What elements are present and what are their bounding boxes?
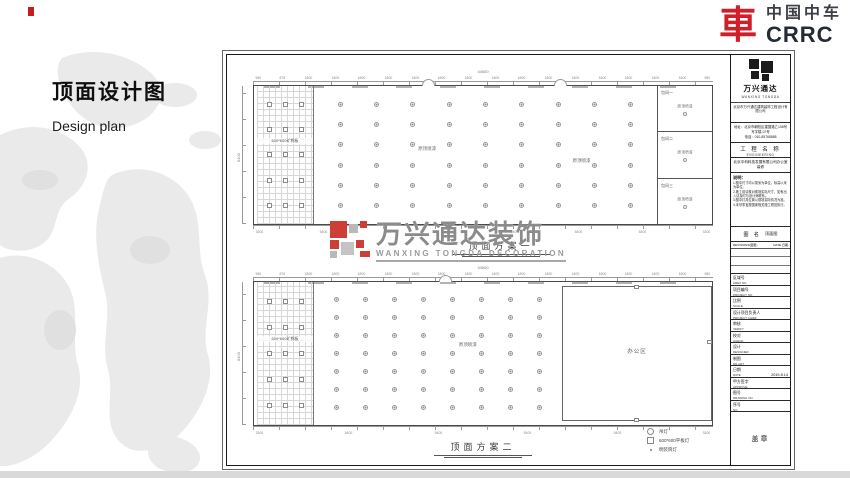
pendant-light-icon bbox=[392, 315, 397, 320]
dim-number: 3300 bbox=[703, 229, 711, 234]
panel-light-icon bbox=[267, 403, 272, 408]
pendant-light-icon bbox=[508, 333, 513, 338]
plan-two-bottom-dims: 330054005400540054003300 bbox=[253, 430, 713, 436]
pendant-light-icon bbox=[447, 203, 452, 208]
column-mark bbox=[707, 340, 712, 344]
brand-name-cn: 中国中车 bbox=[766, 6, 842, 23]
field-label-en: APPROVE bbox=[733, 385, 748, 389]
dim-number: 3300 bbox=[256, 430, 264, 435]
panel-light-icon bbox=[267, 325, 272, 330]
dim-number: 5400 bbox=[320, 229, 328, 234]
dim-number: 5400 bbox=[524, 430, 532, 435]
legend-item: 600*600平板灯 bbox=[647, 436, 727, 445]
pendant-light-icon bbox=[556, 203, 561, 208]
column-mark bbox=[634, 285, 639, 289]
pendant-light-icon bbox=[392, 405, 397, 410]
crrc-emblem-icon: 車 bbox=[717, 5, 759, 47]
dim-number: 1800 bbox=[305, 75, 313, 80]
revision-row bbox=[731, 249, 790, 257]
ceiling-finish-label: 原顶喷漆 bbox=[418, 146, 436, 152]
panel-light-icon bbox=[283, 299, 288, 304]
office-area-room: 办公区 bbox=[562, 286, 712, 421]
ceiling-finish-label: 原顶喷漆 bbox=[459, 342, 477, 348]
wanxing-tongda-logo-icon bbox=[749, 59, 773, 81]
pendant-light-icon bbox=[421, 405, 426, 410]
pendant-light-icon bbox=[363, 351, 368, 356]
panel-light-icon bbox=[283, 178, 288, 183]
dim-number: 1800 bbox=[385, 75, 393, 80]
note-line: 4.未尽事宜按国家相关施工规范执行。 bbox=[733, 203, 788, 207]
pendant-light-icon bbox=[410, 102, 415, 107]
crrc-logo: 車 中国中车 CRRC bbox=[717, 5, 842, 47]
watermark-name-en: WANXING TONGDA DECORATION bbox=[376, 249, 566, 262]
titleblock-logo-cn: 万兴通达 bbox=[744, 83, 778, 94]
pendant-light-icon bbox=[483, 142, 488, 147]
page-subtitle: Design plan bbox=[52, 118, 167, 134]
pendant-light-grid bbox=[322, 94, 649, 216]
panel-light-icon bbox=[283, 377, 288, 382]
pendant-light-icon bbox=[334, 333, 339, 338]
legend-item: 吊灯 bbox=[647, 427, 727, 436]
pendant-light-icon bbox=[374, 142, 379, 147]
pendant-light-icon bbox=[334, 297, 339, 302]
plan-one-panel-ceiling: 600*600矿棉板 bbox=[257, 86, 314, 224]
pendant-light-icon bbox=[508, 297, 513, 302]
titleblock-field-row: 设计项目负责人PROJECT CHIEF bbox=[731, 309, 790, 321]
door-arc-icon bbox=[439, 275, 452, 282]
pendant-light-icon bbox=[479, 369, 484, 374]
titleblock: 万兴通达 WANXING TONGDA 北京市万兴通达建筑装饰工程设计有限公司 … bbox=[730, 55, 790, 465]
room-ceiling-label: 原顶喷漆 bbox=[677, 151, 692, 156]
note-line: 2.施工前请核对现场实际尺寸，如有出入请及时与设计师联系。 bbox=[733, 190, 788, 199]
corner-red-mark bbox=[28, 7, 34, 16]
pendant-light-icon bbox=[392, 351, 397, 356]
dim-number: 1800 bbox=[625, 271, 633, 276]
dim-number: 1800 bbox=[385, 271, 393, 276]
dim-number: 875 bbox=[280, 271, 286, 276]
room-name: 包间三 bbox=[661, 183, 673, 189]
pendant-light-icon bbox=[363, 405, 368, 410]
titleblock-field-row: 日期DATE2019.8.14 bbox=[731, 366, 790, 378]
titleblock-revisions: REVISIONS(图更) DATE 日期 bbox=[731, 242, 790, 274]
dim-number: 980 bbox=[256, 271, 262, 276]
dim-number: 1800 bbox=[518, 271, 526, 276]
pendant-light-icon bbox=[508, 369, 513, 374]
pendant-light-icon bbox=[421, 369, 426, 374]
door-arc-icon bbox=[554, 79, 567, 86]
field-label-en: DESIGNER bbox=[733, 350, 749, 354]
pendant-light-icon bbox=[683, 205, 687, 209]
dim-number: 1800 bbox=[598, 75, 606, 80]
dim-number: 1800 bbox=[331, 271, 339, 276]
dim-number: 1800 bbox=[545, 75, 553, 80]
dim-number: 5400 bbox=[434, 430, 442, 435]
dim-number: 980 bbox=[705, 75, 711, 80]
pendant-light-icon bbox=[556, 142, 561, 147]
dim-number: 1800 bbox=[465, 271, 473, 276]
pendant-light-icon bbox=[519, 142, 524, 147]
pendant-light-icon bbox=[338, 183, 343, 188]
pendant-light-icon bbox=[479, 315, 484, 320]
panel-light-icon bbox=[283, 102, 288, 107]
pendant-light-icon bbox=[508, 351, 513, 356]
dot-symbol-icon bbox=[647, 448, 654, 451]
plan-one-side-dim-line bbox=[242, 86, 246, 224]
pendant-light-icon bbox=[450, 351, 455, 356]
revisions-label: REVISIONS(图更) bbox=[733, 243, 757, 247]
titleblock-logo: 万兴通达 WANXING TONGDA 北京市万兴通达建筑装饰工程设计有限公司 bbox=[731, 55, 790, 123]
wanxing-watermark-logo-icon bbox=[330, 221, 370, 261]
pendant-light-icon bbox=[483, 122, 488, 127]
pendant-light-icon bbox=[338, 122, 343, 127]
titleblock-field-row: 项目编号PROJECT NO bbox=[731, 286, 790, 298]
plan-two-outline: 8400 600*600矿棉板 原顶喷漆 办公区 bbox=[253, 281, 713, 426]
plan-one-side-dim: 8400 bbox=[236, 153, 241, 162]
pendant-light-icon bbox=[508, 315, 513, 320]
address-line-1: 地址：北京市朝阳区建国路乙108号写字楼-07号 bbox=[733, 125, 788, 135]
panel-light-icon bbox=[267, 351, 272, 356]
titleblock-fields: 区域号AREA NO项目编号PROJECT NO比例SCALE设计项目负责人PR… bbox=[731, 274, 790, 412]
pendant-light-icon bbox=[410, 163, 415, 168]
pendant-light-icon bbox=[628, 142, 633, 147]
dim-number: 1800 bbox=[438, 75, 446, 80]
pendant-light-icon bbox=[483, 203, 488, 208]
pendant-light-icon bbox=[334, 387, 339, 392]
dim-number: 1800 bbox=[598, 271, 606, 276]
pendant-light-icon bbox=[556, 183, 561, 188]
pendant-light-icon bbox=[628, 163, 633, 168]
titleblock-address: 地址：北京市朝阳区建国路乙108号写字楼-07号 电话：010-85768888 bbox=[731, 123, 790, 143]
note-line: 1.图中尺寸均以毫米为单位，标高以米为单位。 bbox=[733, 181, 788, 190]
ceiling-finish-label: 原顶喷漆 bbox=[573, 158, 591, 164]
page-title: 顶面设计图 bbox=[52, 76, 167, 106]
pendant-light-icon bbox=[374, 183, 379, 188]
titleblock-field-row: 区域号AREA NO bbox=[731, 274, 790, 286]
field-label-en: AREA NO bbox=[733, 281, 746, 285]
pendant-light-icon bbox=[628, 203, 633, 208]
pendant-light-grid bbox=[322, 290, 554, 417]
wanxing-watermark: 万兴通达装饰 WANXING TONGDA DECORATION bbox=[330, 221, 566, 262]
pendant-light-icon bbox=[537, 297, 542, 302]
pendant-light-icon bbox=[392, 369, 397, 374]
pendant-light-icon bbox=[334, 405, 339, 410]
page-title-block: 顶面设计图 Design plan bbox=[52, 76, 167, 134]
pendant-light-icon bbox=[374, 122, 379, 127]
pendant-light-icon bbox=[334, 315, 339, 320]
revision-row bbox=[731, 257, 790, 265]
pendant-light-icon bbox=[592, 102, 597, 107]
dim-number: 5400 bbox=[613, 430, 621, 435]
pendant-light-icon bbox=[479, 297, 484, 302]
pendant-light-icon bbox=[447, 102, 452, 107]
titleblock-logo-en: WANXING TONGDA bbox=[742, 95, 780, 99]
pendant-light-icon bbox=[683, 158, 687, 162]
watermark-name-cn: 万兴通达装饰 bbox=[376, 221, 566, 248]
pendant-light-icon bbox=[519, 102, 524, 107]
dim-number: 5400 bbox=[575, 229, 583, 234]
pendant-light-icon bbox=[392, 333, 397, 338]
pendant-light-icon bbox=[374, 163, 379, 168]
legend-label: 明装筒灯 bbox=[659, 447, 677, 453]
pendant-light-icon bbox=[537, 405, 542, 410]
pendant-light-icon bbox=[628, 102, 633, 107]
column-mark bbox=[634, 418, 639, 422]
dim-number: 1800 bbox=[652, 271, 660, 276]
panel-light-icon bbox=[283, 127, 288, 132]
pendant-light-icon bbox=[338, 163, 343, 168]
pendant-light-icon bbox=[519, 183, 524, 188]
panel-light-icon bbox=[283, 403, 288, 408]
pendant-light-icon bbox=[410, 183, 415, 188]
pendant-light-icon bbox=[519, 203, 524, 208]
room-ceiling-label: 原顶喷漆 bbox=[677, 104, 692, 109]
dim-number: 3300 bbox=[256, 229, 264, 234]
panel-light-icon bbox=[283, 152, 288, 157]
plan-one-outline: 8400 600*600矿棉板 原顶喷漆 原顶喷漆 bbox=[253, 85, 713, 225]
pendant-light-icon bbox=[628, 122, 633, 127]
field-label-en: PROJECT NO bbox=[733, 293, 752, 297]
panel-light-icon bbox=[267, 102, 272, 107]
plan-two-side-dim-line bbox=[242, 282, 246, 425]
pendant-light-icon bbox=[556, 163, 561, 168]
titleblock-field-row: 比例SCALE bbox=[731, 297, 790, 309]
pendant-light-icon bbox=[683, 112, 687, 116]
dim-number: 1800 bbox=[305, 271, 313, 276]
panel-light-icon bbox=[299, 299, 304, 304]
pendant-light-icon bbox=[392, 297, 397, 302]
notes-lines: 1.图中尺寸均以毫米为单位，标高以米为单位。2.施工前请核对现场实际尺寸，如有出… bbox=[733, 181, 788, 207]
stamp-label: 盖章 bbox=[752, 434, 770, 444]
pendant-light-icon bbox=[592, 203, 597, 208]
titleblock-field-row: 审核VERIFY bbox=[731, 320, 790, 332]
pendant-light-icon bbox=[592, 142, 597, 147]
brand-name-en: CRRC bbox=[766, 23, 842, 46]
plan-two-side-dim: 8400 bbox=[236, 352, 241, 361]
pendant-light-icon bbox=[392, 387, 397, 392]
pendant-light-icon bbox=[447, 163, 452, 168]
room-name: 包间一 bbox=[661, 90, 673, 96]
panel-ceiling-label: 600*600矿棉板 bbox=[257, 138, 313, 144]
dim-number: 1800 bbox=[358, 271, 366, 276]
titleblock-engineering-header: 工 程 名 称 ENGINEERING bbox=[731, 143, 790, 158]
pendant-light-icon bbox=[338, 203, 343, 208]
dim-number: 1800 bbox=[411, 271, 419, 276]
pendant-light-icon bbox=[537, 315, 542, 320]
pendant-light-icon bbox=[592, 163, 597, 168]
dim-number: 980 bbox=[256, 75, 262, 80]
pendant-light-icon bbox=[363, 387, 368, 392]
panel-light-icon bbox=[299, 403, 304, 408]
pendant-light-icon bbox=[410, 203, 415, 208]
field-label-en: VERIFY bbox=[733, 327, 744, 331]
slide-page: 車 中国中车 CRRC 顶面设计图 Design plan 44500 9808… bbox=[0, 0, 850, 478]
panel-light-icon bbox=[267, 152, 272, 157]
pendant-light-icon bbox=[556, 122, 561, 127]
field-label-en: DRAWING NO bbox=[733, 396, 753, 400]
dim-number: 1800 bbox=[491, 75, 499, 80]
room-3: 包间三 原顶喷漆 bbox=[658, 179, 712, 224]
light-legend: 吊灯600*600平板灯明装筒灯 bbox=[647, 427, 727, 454]
titleblock-drawing-name: 图 名 顶面图 bbox=[731, 227, 790, 242]
titleblock-field-row: 制图DR.ART bbox=[731, 355, 790, 367]
room-ceiling-label: 原顶喷漆 bbox=[677, 197, 692, 202]
circle-symbol-icon bbox=[647, 428, 654, 435]
plan-one-open-ceiling: 原顶喷漆 原顶喷漆 bbox=[314, 86, 657, 224]
pendant-light-icon bbox=[363, 369, 368, 374]
field-value: 2019.8.14 bbox=[771, 373, 788, 377]
room-name: 包间二 bbox=[661, 136, 673, 142]
panel-light-icon bbox=[299, 203, 304, 208]
pendant-light-icon bbox=[592, 183, 597, 188]
pendant-light-icon bbox=[421, 297, 426, 302]
field-label-en: DR.ART bbox=[733, 362, 744, 366]
panel-light-grid bbox=[261, 92, 309, 218]
pendant-light-icon bbox=[483, 163, 488, 168]
pendant-light-icon bbox=[508, 387, 513, 392]
drawing-name-value: 顶面图 bbox=[765, 231, 778, 237]
dim-number: 1800 bbox=[331, 75, 339, 80]
pendant-light-icon bbox=[592, 122, 597, 127]
revision-row bbox=[731, 266, 790, 273]
pendant-light-icon bbox=[410, 142, 415, 147]
revisions-date-label: DATE 日期 bbox=[773, 243, 788, 247]
field-label-en: CHECK bbox=[733, 339, 744, 343]
pendant-light-icon bbox=[537, 333, 542, 338]
dim-number: 1800 bbox=[652, 75, 660, 80]
panel-light-icon bbox=[299, 102, 304, 107]
square-symbol-icon bbox=[647, 437, 654, 444]
dim-number: 1800 bbox=[465, 75, 473, 80]
address-line-2: 电话：010-85768888 bbox=[733, 135, 788, 140]
dim-number: 875 bbox=[280, 75, 286, 80]
pendant-light-icon bbox=[537, 369, 542, 374]
panel-light-icon bbox=[283, 325, 288, 330]
dim-number: 1800 bbox=[571, 271, 579, 276]
dim-number: 1800 bbox=[678, 271, 686, 276]
pendant-light-icon bbox=[421, 315, 426, 320]
field-label-en: DATE bbox=[733, 373, 741, 377]
plan-two-panel-ceiling: 600*600矿棉板 bbox=[257, 282, 314, 425]
pendant-light-icon bbox=[363, 297, 368, 302]
pendant-light-icon bbox=[628, 183, 633, 188]
dim-number: 5400 bbox=[639, 229, 647, 234]
pendant-light-icon bbox=[479, 333, 484, 338]
titleblock-project-name: 北京中科科技发展有限公司办公室装修 bbox=[731, 158, 790, 173]
pendant-light-icon bbox=[374, 102, 379, 107]
pendant-light-icon bbox=[508, 405, 513, 410]
dim-number: 980 bbox=[705, 271, 711, 276]
plan-two-open-ceiling: 原顶喷漆 bbox=[314, 282, 562, 425]
pendant-light-icon bbox=[338, 142, 343, 147]
titleblock-company: 北京市万兴通达建筑装饰工程设计有限公司 bbox=[731, 102, 790, 114]
dim-number: 1800 bbox=[518, 75, 526, 80]
pendant-light-icon bbox=[334, 369, 339, 374]
pendant-light-icon bbox=[537, 387, 542, 392]
pendant-light-icon bbox=[421, 387, 426, 392]
titleblock-notes: 说明： 1.图中尺寸均以毫米为单位，标高以米为单位。2.施工前请核对现场实际尺寸… bbox=[731, 173, 790, 227]
panel-light-icon bbox=[283, 203, 288, 208]
panel-light-icon bbox=[267, 377, 272, 382]
panel-light-icon bbox=[267, 178, 272, 183]
pendant-light-icon bbox=[421, 351, 426, 356]
pendant-light-icon bbox=[483, 183, 488, 188]
pendant-light-icon bbox=[450, 315, 455, 320]
plan-two-caption: 顶面方案二 bbox=[434, 440, 531, 456]
panel-light-grid bbox=[261, 288, 309, 419]
field-label-en: PROJECT CHIEF bbox=[733, 316, 757, 320]
pendant-light-icon bbox=[479, 387, 484, 392]
dim-number: 1800 bbox=[545, 271, 553, 276]
dim-number: 1800 bbox=[411, 75, 419, 80]
pendant-light-icon bbox=[447, 122, 452, 127]
engineering-label-en: ENGINEERING bbox=[731, 153, 790, 157]
pendant-light-icon bbox=[479, 351, 484, 356]
room-2: 包间二 原顶喷漆 bbox=[658, 132, 712, 178]
dim-number: 1800 bbox=[678, 75, 686, 80]
office-area-label: 办公区 bbox=[627, 347, 647, 355]
plan-two: 44500 9808751800180018001800180018001800… bbox=[253, 265, 713, 456]
dim-number: 1800 bbox=[358, 75, 366, 80]
field-label-en: SCALE bbox=[733, 304, 743, 308]
dim-number: 1800 bbox=[571, 75, 579, 80]
panel-light-icon bbox=[267, 203, 272, 208]
panel-light-icon bbox=[299, 152, 304, 157]
pendant-light-icon bbox=[450, 297, 455, 302]
pendant-light-icon bbox=[450, 387, 455, 392]
legend-label: 600*600平板灯 bbox=[659, 438, 689, 444]
legend-item: 明装筒灯 bbox=[647, 445, 727, 454]
pendant-light-icon bbox=[374, 203, 379, 208]
panel-light-icon bbox=[299, 127, 304, 132]
dim-number: 1800 bbox=[625, 75, 633, 80]
pendant-light-icon bbox=[450, 405, 455, 410]
panel-light-icon bbox=[267, 127, 272, 132]
note-line: 3.图中灯具位置以现场实际情况为准。 bbox=[733, 198, 788, 202]
pendant-light-icon bbox=[479, 405, 484, 410]
titleblock-stamp: 盖章 bbox=[731, 412, 790, 465]
panel-light-icon bbox=[299, 377, 304, 382]
titleblock-field-row: 甲方签字APPROVE bbox=[731, 378, 790, 390]
engineering-label-cn: 工 程 名 称 bbox=[731, 145, 790, 153]
titleblock-field-row: 设计DESIGNER bbox=[731, 343, 790, 355]
panel-light-icon bbox=[267, 299, 272, 304]
panel-light-icon bbox=[299, 351, 304, 356]
panel-ceiling-label: 600*600矿棉板 bbox=[257, 336, 313, 342]
panel-light-icon bbox=[299, 325, 304, 330]
drawing-name-label: 图 名 bbox=[744, 231, 761, 238]
dim-number: 5400 bbox=[345, 430, 353, 435]
dim-number: 1800 bbox=[491, 271, 499, 276]
titleblock-field-row: 校对CHECK bbox=[731, 332, 790, 344]
pendant-light-icon bbox=[483, 102, 488, 107]
pendant-light-icon bbox=[519, 122, 524, 127]
pendant-light-icon bbox=[338, 102, 343, 107]
pendant-light-icon bbox=[363, 333, 368, 338]
titleblock-field-row: 序号NO bbox=[731, 401, 790, 413]
panel-light-icon bbox=[283, 351, 288, 356]
pendant-light-icon bbox=[450, 369, 455, 374]
titleblock-field-row: 图号DRAWING NO bbox=[731, 389, 790, 401]
legend-label: 吊灯 bbox=[659, 429, 668, 435]
pendant-light-icon bbox=[447, 142, 452, 147]
pendant-light-icon bbox=[447, 183, 452, 188]
room-1: 包间一 原顶喷漆 bbox=[658, 86, 712, 132]
plan-one-rooms: 包间一 原顶喷漆 包间二 原顶喷漆 包间三 原顶喷漆 bbox=[657, 86, 712, 224]
pendant-light-icon bbox=[334, 351, 339, 356]
door-arc-icon bbox=[422, 79, 435, 86]
pendant-light-icon bbox=[410, 122, 415, 127]
pendant-light-icon bbox=[537, 351, 542, 356]
